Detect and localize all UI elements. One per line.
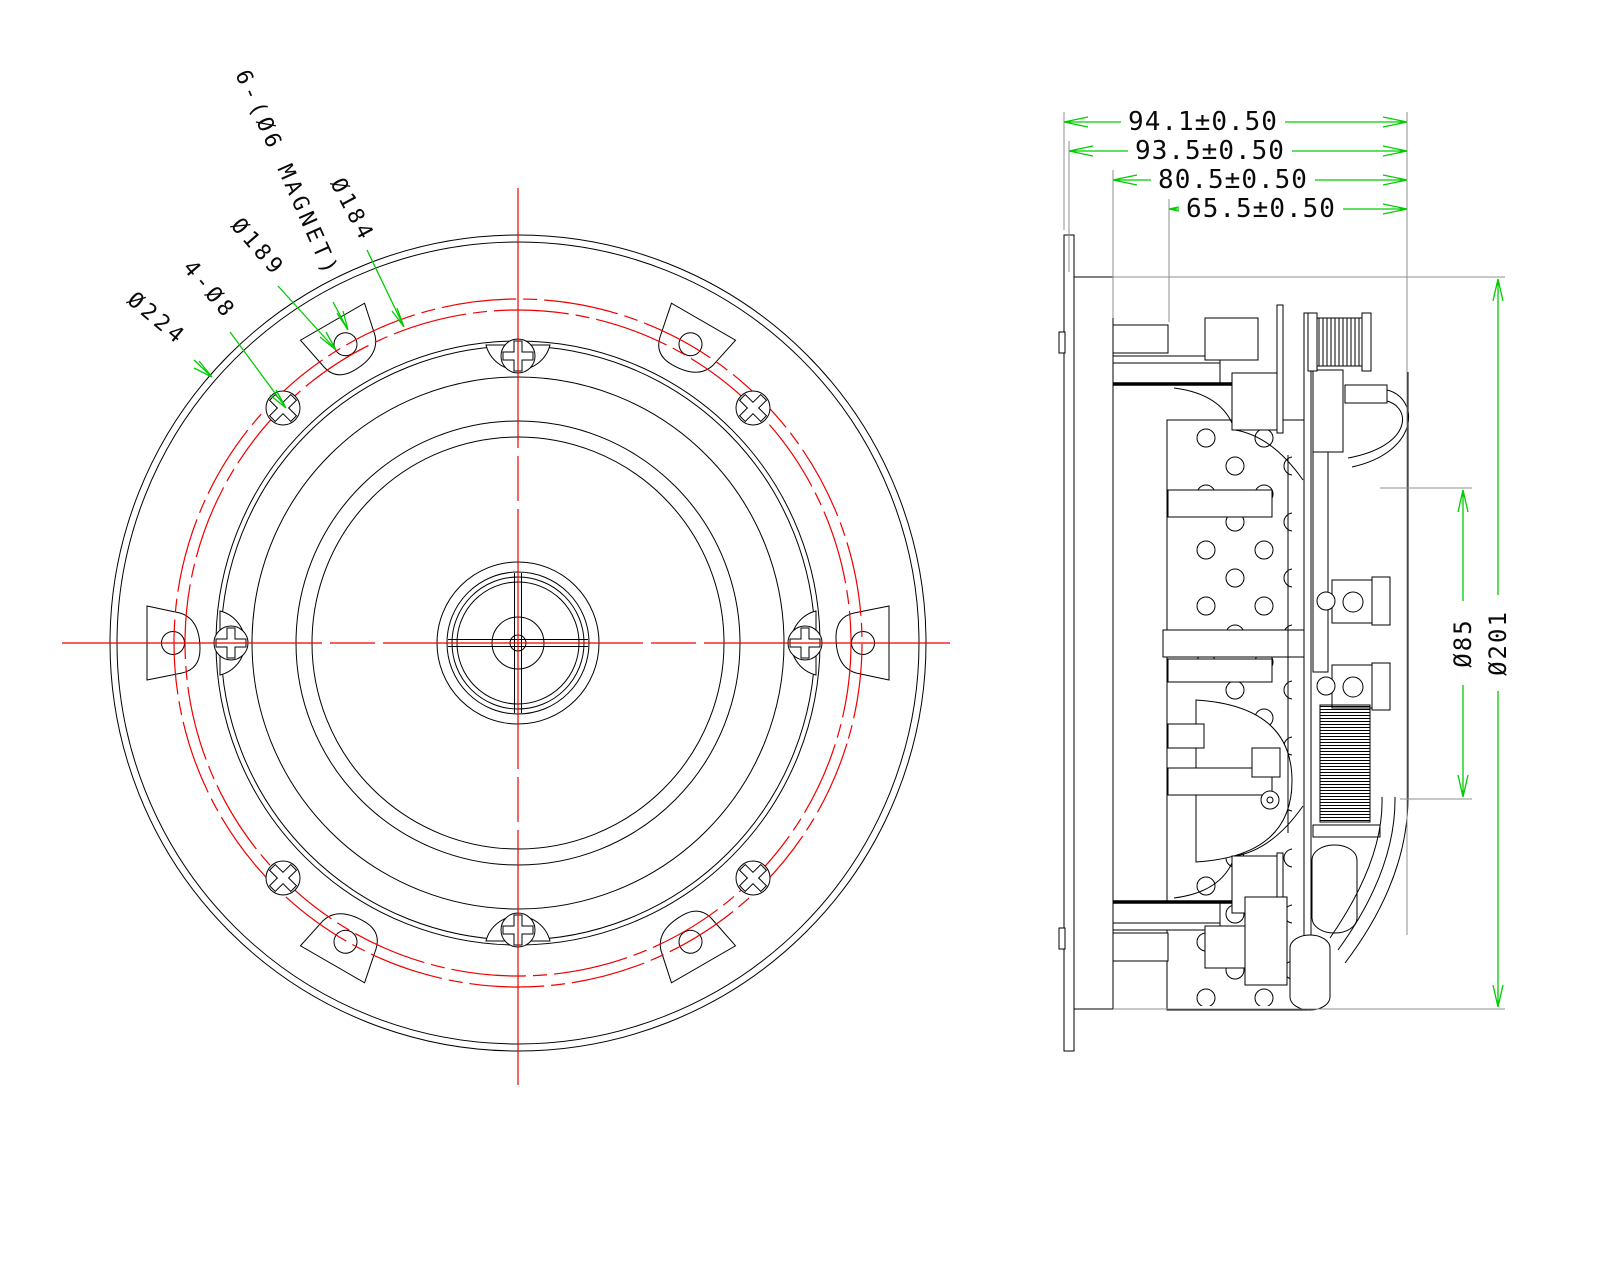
- callout-mounting-holes: 4-Ø8: [177, 256, 240, 325]
- magnet-assembly: [1312, 705, 1408, 963]
- dimension-94-1: 94.1±0.50: [1064, 107, 1407, 137]
- crossover-inductor-coil: [1308, 313, 1371, 371]
- leader-magnet-circle: [278, 286, 336, 350]
- callout-outer-diameter: Ø224: [122, 287, 191, 350]
- dim-depth-2: 93.5±0.50: [1135, 136, 1285, 166]
- dim-coil-diameter: Ø85: [1449, 618, 1477, 667]
- dim-body-diameter: Ø201: [1484, 610, 1512, 676]
- dimension-93-5: 93.5±0.50: [1069, 136, 1407, 166]
- front-bezel: [1059, 235, 1113, 1051]
- dimension-80-5: 80.5±0.50: [1113, 165, 1407, 195]
- basket-front-steps-top: [1113, 305, 1283, 433]
- dimension-65-5: 65.5±0.50: [1169, 194, 1407, 224]
- leader-magnet-note: [333, 302, 348, 330]
- dim-depth-3: 80.5±0.50: [1158, 165, 1308, 195]
- depth-dimensions: 94.1±0.50 93.5±0.50 80.5±0.50 65.5±0.50: [1064, 107, 1407, 224]
- dim-total-depth: 94.1±0.50: [1128, 107, 1278, 137]
- dim-depth-4: 65.5±0.50: [1186, 194, 1336, 224]
- callout-magnet-circle: Ø189: [225, 214, 289, 282]
- callout-screw-circle: Ø184: [325, 174, 379, 247]
- lead-wire: [1345, 385, 1409, 467]
- dimension-dia-85: Ø85: [1449, 490, 1477, 797]
- front-view: Ø224 4-Ø8 Ø189 6-(Ø6 MAGNET) Ø184: [62, 66, 950, 1085]
- front-callout-labels: Ø224 4-Ø8 Ø189 6-(Ø6 MAGNET) Ø184: [122, 66, 379, 351]
- cad-drawing-page: Ø224 4-Ø8 Ø189 6-(Ø6 MAGNET) Ø184: [0, 0, 1600, 1280]
- speaker-technical-drawing: Ø224 4-Ø8 Ø189 6-(Ø6 MAGNET) Ø184: [0, 0, 1600, 1280]
- dimension-dia-201: Ø201: [1484, 279, 1512, 1007]
- leader-outer-diameter: [194, 360, 212, 377]
- diameter-dimensions: Ø85 Ø201: [1449, 279, 1512, 1007]
- leader-screw-circle: [367, 250, 404, 327]
- leader-mounting-holes: [230, 332, 286, 408]
- side-view: [1059, 235, 1409, 1051]
